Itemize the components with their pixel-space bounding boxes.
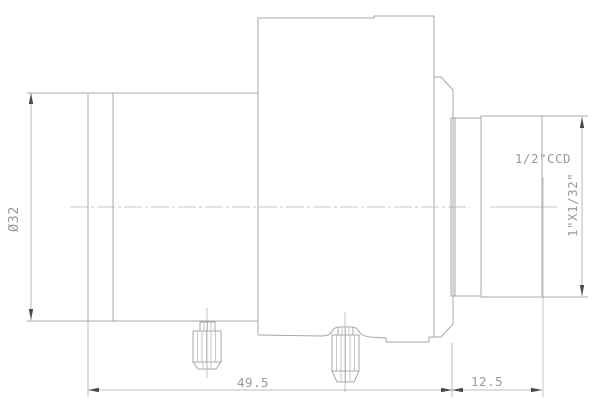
dimension-mount-length: 12.5 [452,374,542,392]
thread-spec-label: 1"X1/32" [565,173,580,237]
mount-thread-section [481,116,542,297]
zoom-ring-block [258,16,434,342]
arrowhead-left [88,388,99,392]
lens-drawing-canvas: Ø32 49.5 12.5 1"X1/32" 1/2"CCD [0,0,603,417]
diameter-label: Ø32 [6,206,22,232]
centerlines [70,177,557,397]
lens-technical-drawing-page: Ø32 49.5 12.5 1"X1/32" 1/2"CCD [0,0,603,417]
arrowhead-up [29,93,33,104]
arrowhead-up [580,117,584,128]
arrowhead-right [441,388,452,392]
arrowhead-right [531,388,542,392]
rear-thumb-screw [332,327,359,382]
dimension-thread: 1"X1/32" [565,117,584,296]
front-barrel [27,93,258,321]
mount-length-label: 12.5 [471,374,503,389]
arrowhead-down [580,285,584,296]
arrowhead-left [452,388,463,392]
arrowhead-down [29,309,33,320]
dimension-front-diameter: Ø32 [6,93,33,320]
body-length-label: 49.5 [237,375,269,390]
ring-block-outline [258,16,434,337]
sensor-format-label: 1/2"CCD [515,151,571,166]
dimension-body-length: 49.5 [88,321,452,397]
